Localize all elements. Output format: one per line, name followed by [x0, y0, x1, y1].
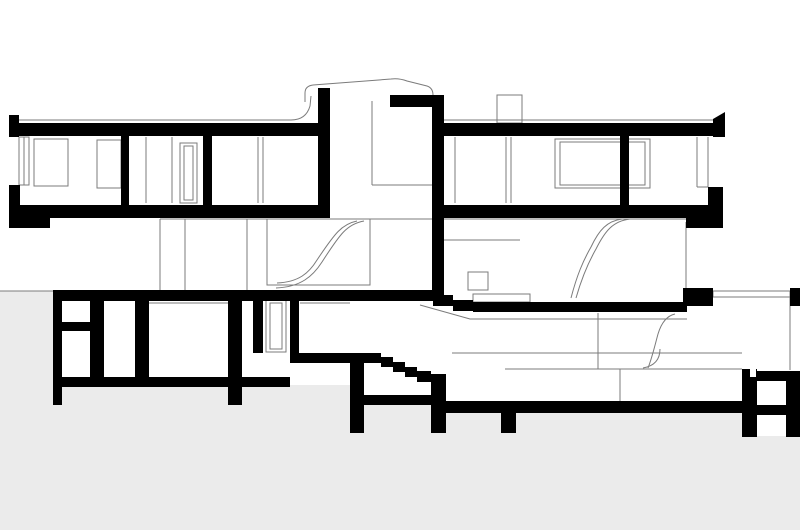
lower-floor-slab-right [446, 401, 742, 413]
partition-wall [620, 136, 629, 205]
stair-step [417, 371, 431, 382]
wall-notch [750, 369, 756, 377]
ground-slab [53, 290, 433, 301]
cut-structure [9, 88, 800, 437]
roof-skylight [497, 95, 522, 123]
section-drawing [0, 0, 800, 530]
slab-block [683, 288, 713, 306]
upper-wall-end-right [708, 187, 723, 218]
foundation-stub [501, 413, 516, 433]
window-opening [555, 139, 650, 188]
roof-slab-right [444, 123, 713, 136]
furniture-outline [34, 139, 68, 186]
basement-wall [135, 298, 149, 382]
stair-step [393, 362, 405, 372]
terrace-end-block [790, 288, 800, 306]
basement-floor-slab [53, 377, 290, 387]
stair-step [405, 367, 417, 377]
basement-wall [90, 298, 104, 382]
parapet-right [713, 112, 725, 137]
door-frame [180, 143, 197, 203]
roof-slab-left [9, 123, 320, 136]
basement-wall-right [742, 369, 757, 437]
step-box [468, 272, 488, 290]
lightwell-floor-slab [742, 405, 800, 415]
landing-outline [473, 294, 530, 302]
curved-wall [276, 221, 364, 288]
curved-wall [576, 219, 630, 298]
roof-edge-left [19, 96, 311, 120]
basement-wall [253, 298, 263, 353]
slab-edge-step [9, 218, 50, 228]
building-section-svg [0, 0, 800, 530]
upper-floor-level [9, 136, 723, 228]
ground-slab-lower [473, 302, 687, 312]
basement-door [266, 300, 286, 352]
roof-level [9, 112, 725, 137]
stair-step [381, 357, 393, 367]
furniture-outline [97, 140, 121, 188]
slab-step [433, 295, 453, 306]
ground-floor-level [53, 288, 800, 312]
tower-beam [390, 95, 444, 107]
basement-wall [228, 297, 242, 405]
basement-wall-outer [53, 290, 62, 405]
basement-wall-far-right [786, 371, 800, 437]
partition-wall [121, 136, 129, 205]
upper-slab-right [434, 205, 723, 218]
tower-wall-right [432, 95, 444, 301]
partition-wall [203, 136, 212, 205]
window-sill [53, 322, 90, 331]
stair-landing-slab [290, 353, 381, 363]
curved-wall-lower [648, 314, 675, 368]
terrace-slab [713, 291, 790, 297]
tower-volume [318, 88, 444, 301]
stair-enclosure [267, 219, 370, 285]
lower-floor-slab [350, 395, 446, 405]
upper-slab-left [9, 205, 330, 218]
basement-wall [290, 298, 299, 355]
tower-wall-left [318, 88, 330, 218]
slab-step [453, 300, 473, 311]
